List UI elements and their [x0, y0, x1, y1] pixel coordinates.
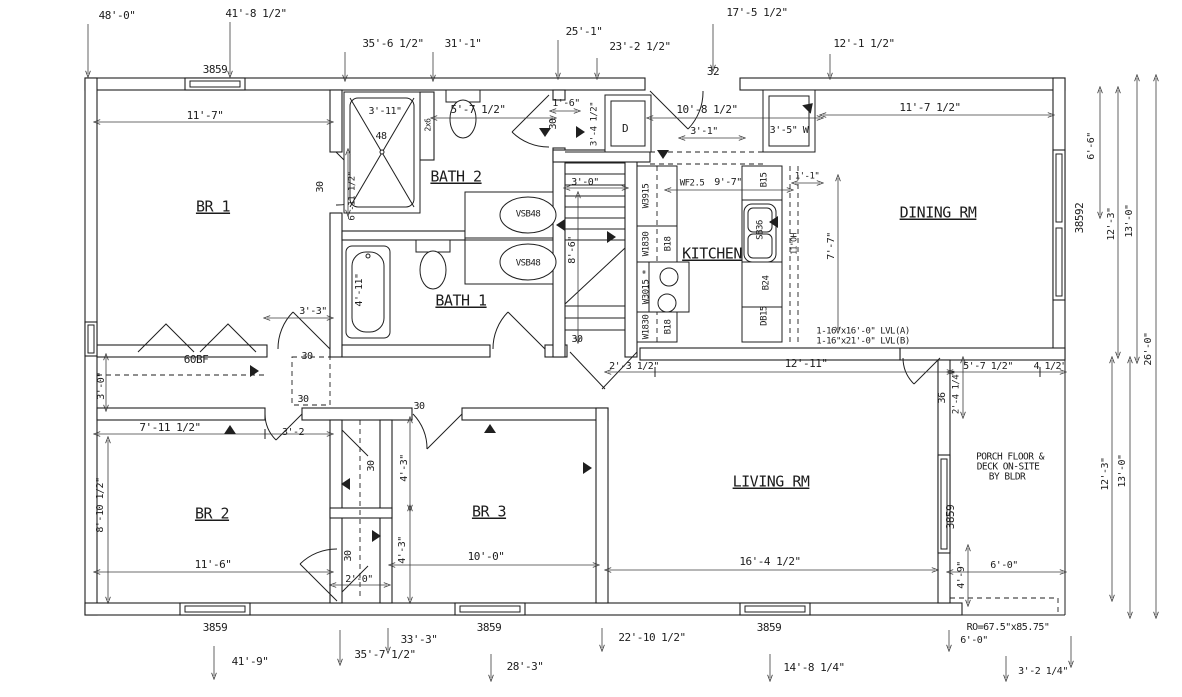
washer [763, 90, 815, 152]
dim-label: 8'-10 1/2" [95, 477, 106, 532]
dim-label: 6'-0" [990, 560, 1018, 571]
dim-label: 2'-0" [345, 574, 373, 585]
note-label: 3'-5" W [770, 125, 810, 136]
dim-label: 3'-2 [282, 427, 305, 438]
dim-label: 26'-0" [1143, 332, 1154, 365]
top-wall-right [740, 78, 1065, 90]
note-label: 1-16"x21'-0" LVL(B) [816, 337, 909, 347]
dim-label: 2'-3 1/2" [609, 361, 659, 372]
dim-label: 4 1/2" [1033, 361, 1066, 372]
room-label: DINING RM [900, 204, 977, 222]
dim-label: 10'-0" [468, 550, 505, 563]
cabinet-label: B18 [664, 320, 674, 335]
direction-arrow-mark [607, 231, 616, 243]
br3-door [413, 414, 462, 449]
dim-label: 8'-6" [567, 236, 578, 264]
range-burner [660, 268, 678, 286]
dim-label: 16'-4 1/2" [739, 555, 800, 568]
dim-label: 12'-11" [785, 357, 828, 370]
floor-plan-drawing: 48'-0"41'-8 1/2"35'-6 1/2"31'-1"25'-1"23… [0, 0, 1182, 697]
window-label: 3859 [203, 621, 228, 634]
note-label: WF2.5 [680, 179, 705, 189]
cabinet-label: W3015 * [642, 270, 652, 305]
dim-label: 11'-6" [195, 558, 232, 571]
window [1053, 150, 1065, 300]
dim-label: 41'-9" [232, 655, 269, 668]
dim-label: 6'-6" [1086, 132, 1097, 160]
dim-label: 14'-8 1/4" [783, 661, 844, 674]
dim-label: 3'-1" [690, 126, 718, 137]
room-label: BATH 1 [435, 292, 487, 310]
cabinet-label: SB36 [756, 220, 766, 240]
window [455, 603, 525, 615]
window [740, 603, 810, 615]
room-label: BATH 2 [430, 168, 481, 186]
dim-label: 3'-0" [96, 372, 107, 400]
dim-label: 12'-3" [1106, 207, 1117, 240]
direction-arrow-mark [224, 425, 236, 434]
cabinet-label: B18 [664, 237, 674, 252]
dim-label: 11'-7 1/2" [899, 101, 960, 114]
dim-label: 23'-2 1/2" [609, 40, 670, 53]
door-size-label: 30 [315, 181, 326, 193]
room-label: BR 3 [472, 503, 506, 521]
window-label: 3859 [203, 63, 228, 76]
laundry-appliances [605, 90, 815, 152]
dim-label: 2'-4 1/4" [952, 370, 962, 414]
fixture-label: VSB48 [516, 210, 541, 220]
cabinet-label: W1830 [642, 232, 652, 257]
dim-label: 36 [937, 392, 948, 404]
window-label: 3859 [757, 621, 782, 634]
dim-label: 31'-1" [445, 37, 482, 50]
dim-label: 48'-0" [99, 9, 136, 22]
dim-label: 7'-11 1/2" [139, 421, 200, 434]
door-size-label: 30 [571, 334, 583, 345]
dim-label: 10'-8 1/2" [676, 103, 737, 116]
direction-marks-layer [224, 99, 817, 542]
porch-deck [97, 357, 1065, 615]
dim-label: 35'-7 1/2" [354, 648, 415, 661]
dim-label: 4'-11" [354, 273, 365, 306]
note-label: 60BF [184, 353, 209, 366]
dim-label: 11'-7" [187, 109, 224, 122]
dim-label: 5'-7 1/2" [450, 103, 505, 116]
dim-label: 1'-1" [795, 172, 820, 182]
floor-plan-page: 48'-0"41'-8 1/2"35'-6 1/2"31'-1"25'-1"23… [0, 0, 1182, 697]
door-size-label: 30 [548, 118, 559, 130]
vanity-bath2 [465, 192, 556, 238]
porch-door [903, 349, 940, 384]
dim-label: 41'-8 1/2" [225, 7, 286, 20]
dim-label: 3'-3" [299, 306, 327, 317]
cabinet-label: W1830 [642, 315, 652, 340]
note-label: 48 [375, 131, 387, 142]
dim-label: 35'-6 1/2" [362, 37, 423, 50]
dim-label: 33'-3" [401, 633, 438, 646]
top-wall-left [85, 78, 645, 90]
fixture-label: VSB48 [516, 259, 541, 269]
dim-label: 6'-11 1/2" [348, 171, 358, 220]
window-label: 38592 [1073, 203, 1086, 234]
door-size-label: 32 [707, 65, 719, 78]
dim-label: 4'-3" [399, 454, 410, 482]
vanity-bath1 [465, 240, 556, 284]
direction-arrow-mark [583, 462, 592, 474]
direction-arrow-mark [484, 424, 496, 433]
dim-label: 4'-3" [397, 536, 408, 564]
note-label: 2x6 [424, 118, 433, 132]
dim-label: 4'-9" [956, 561, 967, 589]
door-size-label: 30 [297, 394, 309, 405]
note-label: BY BLDR [989, 472, 1026, 483]
cabinet-label: W3915 [642, 184, 652, 209]
window [180, 603, 250, 615]
dim-label: 22'-10 1/2" [618, 631, 685, 644]
room-label: BR 2 [195, 505, 229, 523]
fixture-label: D [622, 122, 628, 135]
door-size-label: 30 [301, 351, 313, 362]
dim-label: 13'-0" [1117, 454, 1128, 487]
door-size-label: 30 [413, 401, 425, 412]
room-label: LIVING RM [733, 473, 810, 491]
bath2-door [512, 95, 549, 147]
cabinet-label: B24 [762, 276, 772, 291]
window [185, 78, 245, 90]
range-burner [658, 294, 676, 312]
cabinet-label: DB15 [760, 306, 770, 326]
dim-label: 3'-0" [571, 177, 599, 188]
direction-arrow-mark [576, 126, 585, 138]
window [938, 455, 950, 553]
note-label: RO=67.5"x85.75" [967, 622, 1050, 633]
cabinet-label: B15 [760, 173, 770, 188]
dim-label: 5'-7 1/2" [963, 361, 1013, 372]
room-label: KITCHEN [682, 245, 742, 263]
dim-label: 17'-5 1/2" [726, 6, 787, 19]
note-label: 11"OH [790, 233, 799, 255]
dim-label: 3'-11" [368, 106, 401, 117]
bathtub [346, 246, 390, 338]
dim-label: 3'-4 1/2" [590, 102, 600, 146]
dim-label: 12'-1 1/2" [833, 37, 894, 50]
window [85, 322, 97, 356]
dim-label: 9'-7" [714, 177, 742, 188]
dim-label: 1'-6" [552, 98, 580, 109]
door-size-label: 30 [343, 550, 354, 562]
dim-label: 7'-7" [826, 232, 837, 260]
bath1-door [493, 312, 545, 349]
dim-label: 3'-2 1/4" [1018, 666, 1068, 677]
room-label: BR 1 [196, 198, 231, 216]
direction-arrow-mark [657, 150, 669, 159]
dim-label: 6'-0" [960, 635, 988, 646]
br1-closet-door [278, 312, 330, 349]
door-size-label: 30 [366, 460, 377, 472]
dim-label: 12'-3" [1100, 457, 1111, 490]
dim-label: 28'-3" [507, 660, 544, 673]
dim-label: 13'-0" [1124, 204, 1135, 237]
toilet-bath1 [416, 240, 450, 289]
window-label: 3859 [477, 621, 502, 634]
dim-label: 25'-1" [566, 25, 603, 38]
closet-door [342, 430, 368, 456]
note-label: 1-16"x16'-0" LVL(A) [816, 327, 909, 337]
window-label: 3859 [944, 505, 957, 530]
